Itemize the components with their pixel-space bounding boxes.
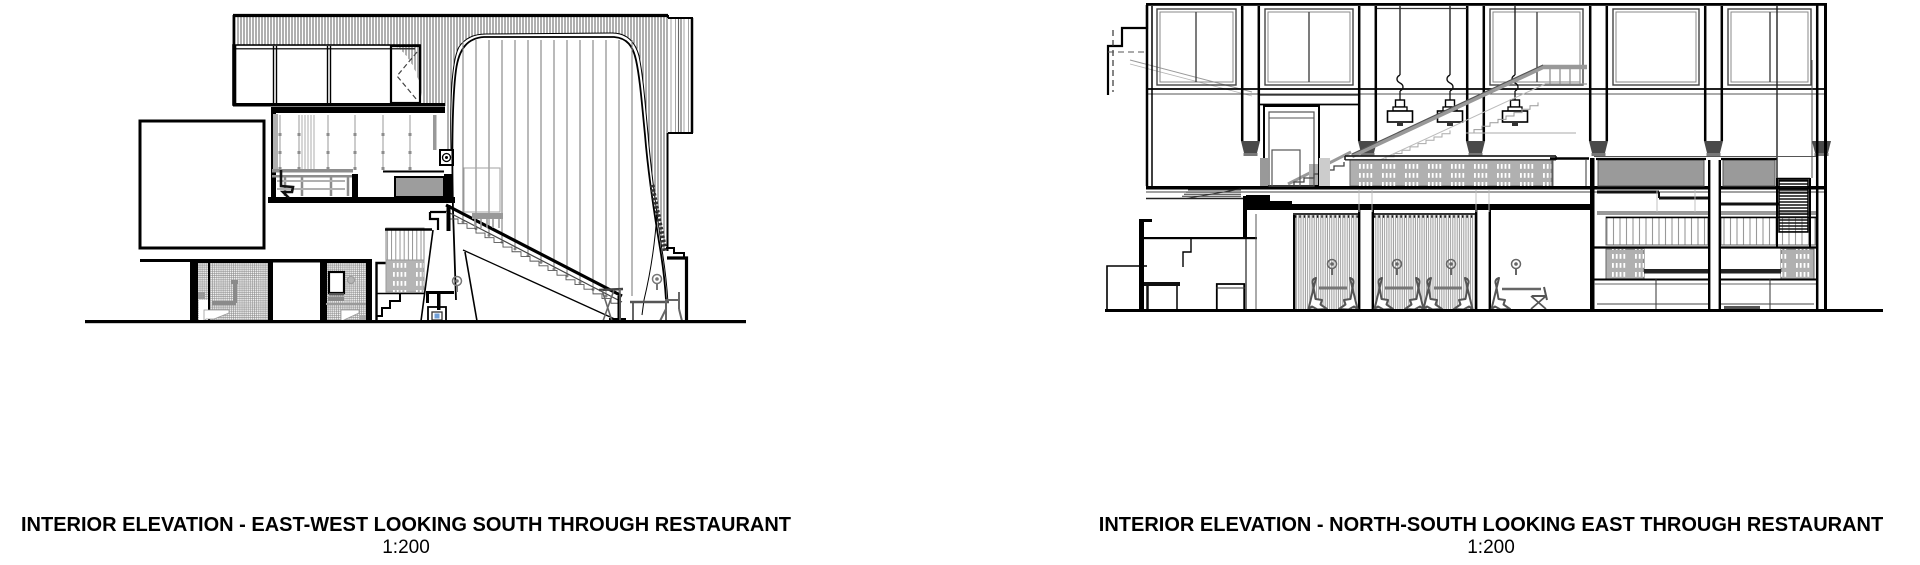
svg-text:INTERIOR ELEVATION - EAST-WEST: INTERIOR ELEVATION - EAST-WEST LOOKING S… [21, 514, 791, 536]
svg-text:1:200: 1:200 [1467, 537, 1515, 558]
svg-text:INTERIOR ELEVATION - NORTH-SOU: INTERIOR ELEVATION - NORTH-SOUTH LOOKING… [1099, 514, 1883, 536]
svg-text:1:200: 1:200 [382, 537, 430, 558]
